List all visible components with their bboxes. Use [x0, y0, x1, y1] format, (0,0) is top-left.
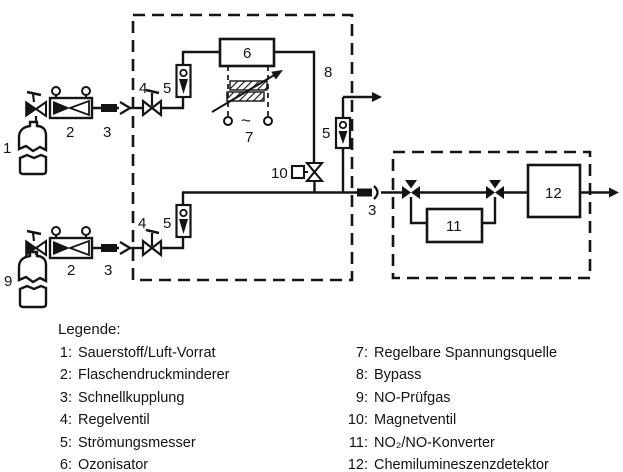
- legend-item-number: 2:: [40, 364, 72, 386]
- quick-coupling-bottom: [92, 242, 143, 254]
- legend-column-right: 7: Regelbare Spannungsquelle 8: Bypass 9…: [330, 342, 557, 472]
- bypass-flowmeter: [336, 118, 350, 148]
- flowmeter-bottom: [177, 205, 191, 237]
- label-bypass-flowmeter: 5: [322, 125, 330, 142]
- magnet-valve: [292, 163, 322, 193]
- label-ozonator: 6: [243, 45, 251, 62]
- pressure-reducer-bottom: [50, 227, 92, 258]
- legend-item-label: Bypass: [374, 364, 422, 386]
- scanned-schematic-page: 1 2 3: [0, 0, 623, 472]
- gauge-icon: [82, 227, 90, 238]
- legend-item-number: 9:: [330, 387, 368, 409]
- label-coupling-main: 3: [368, 202, 376, 219]
- legend-title: Legende:: [58, 321, 121, 338]
- label-voltage-source: 7: [245, 129, 253, 146]
- legend-item: 5: Strömungsmesser: [40, 432, 230, 454]
- pipe: [482, 197, 495, 223]
- cylinder-valve-icon: [26, 92, 46, 122]
- three-way-valve-right: [486, 180, 504, 199]
- pipe: [274, 52, 314, 163]
- label-detector: 12: [545, 185, 562, 202]
- label-reducer-bottom: 2: [67, 262, 75, 279]
- pipe: [183, 52, 220, 65]
- legend-item: 1: Sauerstoff/Luft-Vorrat: [40, 342, 230, 364]
- oxygen-cylinder: [19, 92, 46, 174]
- legend-item-label: Magnetventil: [374, 409, 456, 431]
- legend-item: 11: NO₂/NO-Konverter: [330, 432, 557, 454]
- vent-arrow-icon: [372, 92, 382, 102]
- legend: Legende: 1: Sauerstoff/Luft-Vorrat 2: Fl…: [0, 318, 623, 472]
- legend-item-label: NO-Prüfgas: [374, 387, 451, 409]
- legend-item-number: 8:: [330, 364, 368, 386]
- legend-item-label: Chemilumineszenzdetektor: [374, 454, 549, 472]
- legend-column-left: 1: Sauerstoff/Luft-Vorrat 2: Flaschendru…: [40, 342, 230, 472]
- legend-item-number: 10:: [330, 409, 368, 431]
- legend-item: 4: Regelventil: [40, 409, 230, 431]
- label-coupling-top: 3: [103, 124, 111, 141]
- control-valve-bottom: [143, 230, 161, 255]
- label-no-cylinder: 9: [4, 273, 12, 290]
- variable-arrow-icon: [212, 70, 283, 112]
- legend-item-number: 7:: [330, 342, 368, 364]
- legend-item-number: 5:: [40, 432, 72, 454]
- legend-item: 3: Schnellkupplung: [40, 387, 230, 409]
- legend-item-number: 12:: [330, 454, 368, 472]
- no-gas-cylinder: [19, 231, 46, 307]
- bypass-line: [336, 92, 382, 193]
- label-flowmeter-bottom: 5: [163, 215, 171, 232]
- label-coupling-bottom: 3: [104, 262, 112, 279]
- outlet-arrow: [580, 188, 619, 198]
- legend-item-number: 3:: [40, 387, 72, 409]
- label-bypass: 8: [324, 64, 332, 81]
- legend-item: 9: NO-Prüfgas: [330, 387, 557, 409]
- label-converter: 11: [446, 218, 462, 235]
- legend-item: 8: Bypass: [330, 364, 557, 386]
- label-valve-bottom: 4: [138, 215, 146, 232]
- three-way-valve-left: [402, 180, 420, 199]
- legend-item-label: NO₂/NO-Konverter: [374, 432, 495, 454]
- label-valve-top: 4: [139, 80, 147, 97]
- quick-coupling-main: [357, 186, 403, 199]
- flowmeter-top: [177, 65, 191, 97]
- gauge-icon: [52, 87, 60, 98]
- gauge-icon: [82, 87, 90, 98]
- legend-item-label: Regelventil: [78, 409, 150, 431]
- legend-item-number: 11:: [330, 432, 368, 454]
- legend-item: 12: Chemilumineszenzdetektor: [330, 454, 557, 472]
- quick-coupling-top: [92, 102, 143, 114]
- legend-item: 6: Ozonisator: [40, 454, 230, 472]
- legend-item: 10: Magnetventil: [330, 409, 557, 431]
- legend-item-label: Sauerstoff/Luft-Vorrat: [78, 342, 216, 364]
- outlet-arrow-icon: [609, 188, 619, 198]
- legend-item: 2: Flaschendruckminderer: [40, 364, 230, 386]
- label-magnet-valve: 10: [271, 165, 288, 182]
- label-oxygen-cylinder: 1: [3, 140, 11, 157]
- legend-item-number: 6:: [40, 454, 72, 472]
- pipe: [411, 197, 427, 223]
- gauge-icon: [52, 227, 60, 238]
- schematic-diagram: 1 2 3: [0, 0, 623, 318]
- legend-item-label: Schnellkupplung: [78, 387, 184, 409]
- legend-item-label: Ozonisator: [78, 454, 148, 472]
- legend-item-label: Flaschendruckminderer: [78, 364, 230, 386]
- label-flowmeter-top: 5: [163, 80, 171, 97]
- ac-symbol: ~: [241, 111, 251, 130]
- legend-item-label: Strömungsmesser: [78, 432, 196, 454]
- legend-item-number: 1:: [40, 342, 72, 364]
- label-reducer-top: 2: [66, 124, 74, 141]
- pressure-reducer-top: [50, 87, 92, 118]
- legend-item-label: Regelbare Spannungsquelle: [374, 342, 557, 364]
- legend-item: 7: Regelbare Spannungsquelle: [330, 342, 557, 364]
- legend-item-number: 4:: [40, 409, 72, 431]
